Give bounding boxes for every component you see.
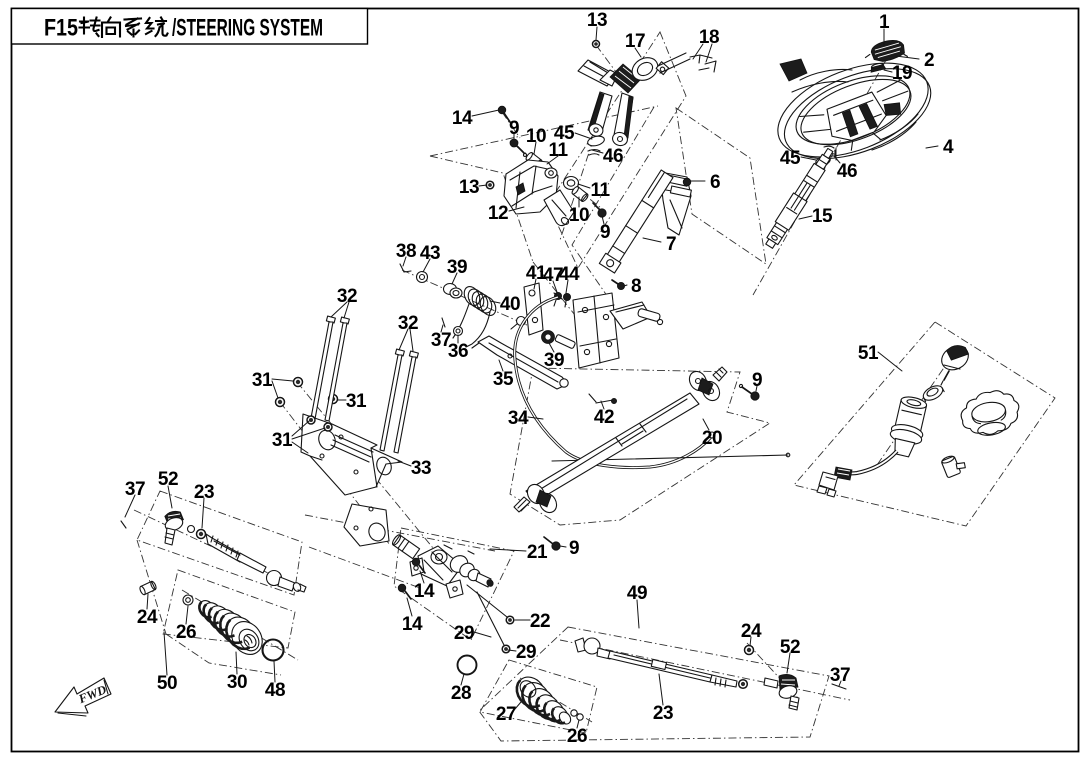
svg-text:9: 9 bbox=[569, 538, 579, 559]
svg-text:42: 42 bbox=[594, 407, 614, 428]
svg-text:29: 29 bbox=[516, 642, 536, 663]
svg-text:19: 19 bbox=[892, 63, 912, 84]
svg-text:39: 39 bbox=[544, 350, 564, 371]
svg-text:4: 4 bbox=[943, 137, 954, 158]
svg-text:32: 32 bbox=[337, 286, 357, 307]
svg-text:39: 39 bbox=[447, 257, 467, 278]
svg-text:28: 28 bbox=[451, 683, 471, 704]
svg-text:14: 14 bbox=[452, 108, 473, 129]
svg-text:32: 32 bbox=[398, 313, 418, 334]
svg-text:31: 31 bbox=[252, 370, 273, 391]
svg-text:43: 43 bbox=[420, 243, 440, 264]
svg-text:37: 37 bbox=[125, 479, 145, 500]
svg-text:14: 14 bbox=[402, 614, 423, 635]
svg-text:9: 9 bbox=[600, 222, 610, 243]
svg-text:38: 38 bbox=[396, 241, 416, 262]
svg-text:30: 30 bbox=[227, 672, 247, 693]
svg-text:21: 21 bbox=[527, 542, 548, 563]
svg-text:46: 46 bbox=[837, 161, 857, 182]
svg-text:/STEERING SYSTEM: /STEERING SYSTEM bbox=[172, 15, 323, 42]
svg-text:22: 22 bbox=[530, 611, 550, 632]
svg-text:36: 36 bbox=[448, 341, 468, 362]
svg-text:6: 6 bbox=[710, 172, 720, 193]
svg-text:10: 10 bbox=[569, 205, 589, 226]
svg-text:46: 46 bbox=[603, 146, 623, 167]
svg-text:33: 33 bbox=[411, 458, 431, 479]
svg-text:27: 27 bbox=[496, 704, 516, 725]
svg-text:24: 24 bbox=[741, 621, 762, 642]
svg-text:26: 26 bbox=[176, 622, 196, 643]
svg-text:20: 20 bbox=[702, 428, 722, 449]
svg-text:34: 34 bbox=[508, 408, 529, 429]
svg-text:31: 31 bbox=[272, 430, 293, 451]
svg-text:51: 51 bbox=[858, 343, 879, 364]
svg-text:29: 29 bbox=[454, 623, 474, 644]
svg-text:13: 13 bbox=[459, 177, 479, 198]
svg-text:2: 2 bbox=[924, 50, 934, 71]
svg-text:23: 23 bbox=[653, 703, 673, 724]
svg-text:31: 31 bbox=[346, 391, 367, 412]
svg-text:50: 50 bbox=[157, 673, 177, 694]
svg-text:44: 44 bbox=[559, 264, 580, 285]
svg-text:35: 35 bbox=[493, 369, 514, 390]
svg-text:14: 14 bbox=[414, 581, 435, 602]
svg-text:26: 26 bbox=[567, 726, 587, 747]
svg-text:48: 48 bbox=[265, 680, 285, 701]
svg-text:11: 11 bbox=[590, 180, 610, 201]
svg-text:45: 45 bbox=[780, 148, 801, 169]
svg-text:12: 12 bbox=[488, 203, 508, 224]
svg-text:7: 7 bbox=[666, 234, 676, 255]
svg-text:F15: F15 bbox=[44, 15, 78, 42]
svg-text:24: 24 bbox=[137, 607, 158, 628]
svg-text:40: 40 bbox=[500, 294, 520, 315]
svg-text:8: 8 bbox=[631, 276, 641, 297]
svg-text:15: 15 bbox=[812, 206, 833, 227]
svg-text:45: 45 bbox=[554, 123, 575, 144]
